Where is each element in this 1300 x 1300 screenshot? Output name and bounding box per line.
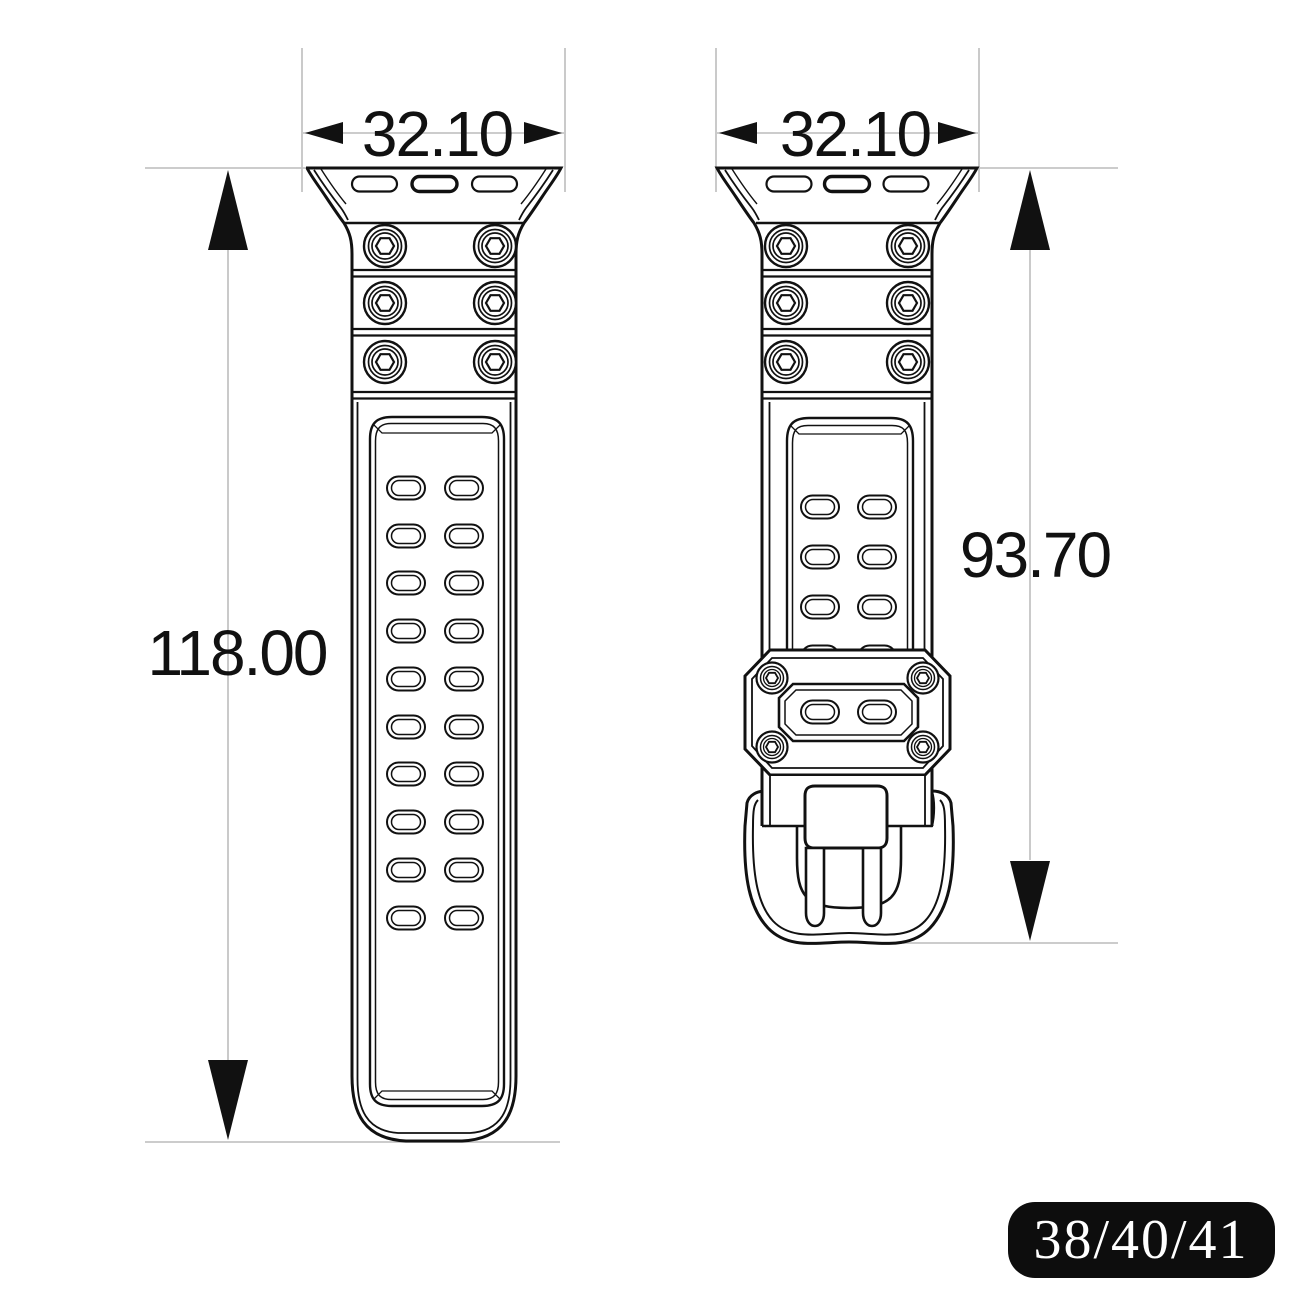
keeper-hole — [858, 701, 896, 724]
dimension-arrow-down-icon — [208, 1060, 248, 1140]
length-dimension-right-value: 93.70 — [960, 519, 1111, 591]
dimension-arrow-down-icon — [1010, 861, 1050, 941]
length-dimension-left-value: 118.00 — [148, 617, 327, 689]
screw-icon — [757, 732, 788, 763]
buckle-prong — [863, 848, 881, 926]
dimension-arrow-left-icon — [305, 122, 343, 144]
width-dimension-right-value: 32.10 — [780, 98, 931, 170]
screw-icon — [474, 282, 516, 324]
screw-icon — [364, 225, 406, 267]
technical-drawing-canvas: 32.10 32.10 118.00 93.70 — [0, 0, 1300, 1300]
adapter-slot — [884, 177, 929, 192]
size-badge-label: 38/40/41 — [1033, 1209, 1248, 1271]
screw-icon — [364, 282, 406, 324]
screw-icon — [765, 225, 807, 267]
dimension-arrow-right-icon — [524, 122, 562, 144]
screw-icon — [908, 663, 939, 694]
screw-icon — [364, 341, 406, 383]
width-dimension-left-value: 32.10 — [362, 98, 513, 170]
screw-icon — [474, 225, 516, 267]
adapter-slot — [825, 177, 870, 192]
dimension-arrow-up-icon — [208, 170, 248, 250]
keeper-window — [779, 684, 918, 741]
size-badge: 38/40/41 — [1008, 1202, 1275, 1278]
front-strap-drawing — [306, 168, 561, 1141]
keeper-hole — [801, 701, 839, 724]
dimension-arrow-left-icon — [719, 122, 757, 144]
screw-icon — [887, 282, 929, 324]
adapter-slot — [352, 177, 397, 192]
screw-icon — [887, 341, 929, 383]
adapter-slot — [412, 177, 457, 192]
buckle — [745, 776, 954, 943]
screw-icon — [887, 225, 929, 267]
dimension-arrow-right-icon — [938, 122, 976, 144]
adapter-slot — [767, 177, 812, 192]
buckle-prong — [806, 848, 824, 926]
strap-panel — [370, 417, 504, 1106]
screw-icon — [474, 341, 516, 383]
buckle-strap-drawing — [717, 168, 977, 943]
keeper-loop — [745, 650, 950, 775]
screw-icon — [757, 663, 788, 694]
screw-icon — [765, 341, 807, 383]
dimension-arrow-up-icon — [1010, 170, 1050, 250]
screw-icon — [908, 732, 939, 763]
buckle-tang-plate — [805, 786, 887, 848]
screw-icon — [765, 282, 807, 324]
adapter-slot — [472, 177, 517, 192]
